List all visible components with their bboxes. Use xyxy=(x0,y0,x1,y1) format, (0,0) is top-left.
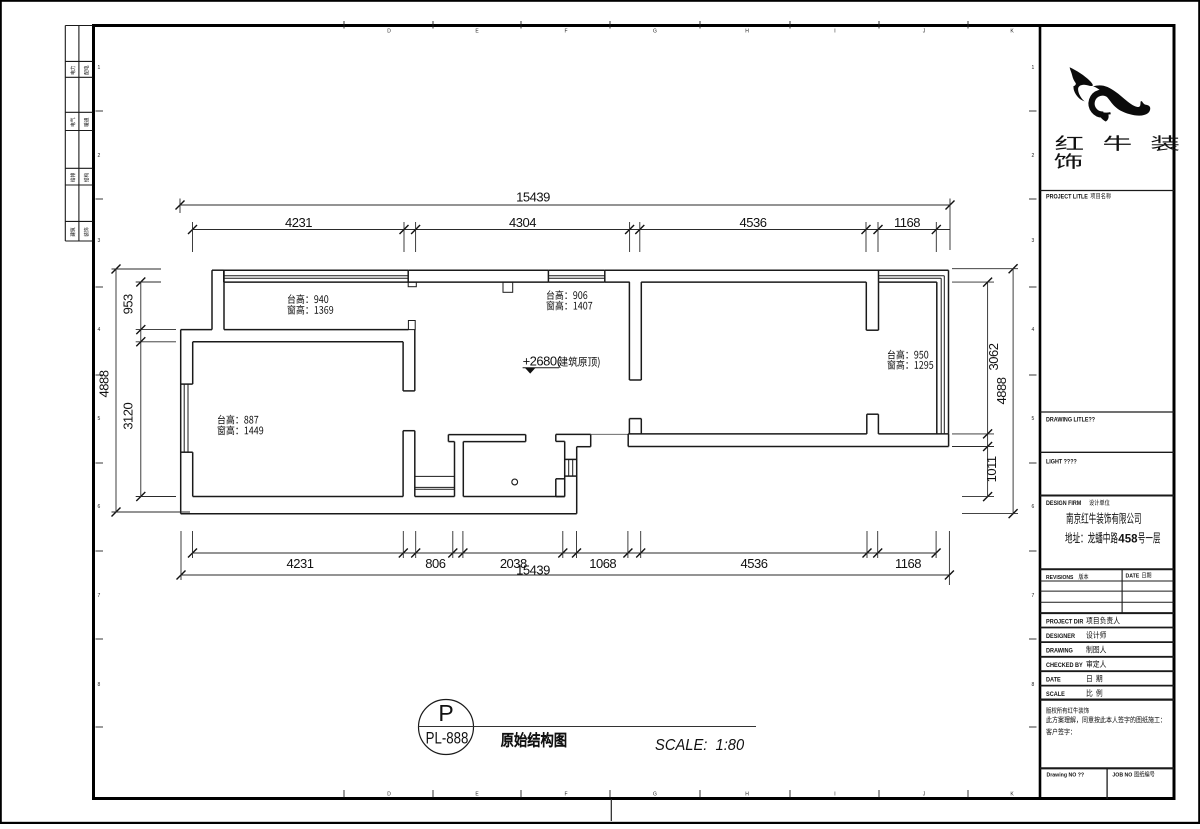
svg-text:4: 4 xyxy=(98,327,101,333)
svg-text:5: 5 xyxy=(98,416,101,422)
svg-text:4304: 4304 xyxy=(509,215,536,230)
svg-text:SCALE: SCALE xyxy=(1046,692,1065,698)
svg-text:I: I xyxy=(834,792,835,798)
svg-text:F: F xyxy=(564,29,567,35)
svg-text:CHECKED BY: CHECKED BY xyxy=(1046,663,1083,669)
svg-text:PROJECT LITLE: PROJECT LITLE xyxy=(1046,194,1088,200)
svg-text:1: 1 xyxy=(1032,65,1035,71)
svg-text:JOB NO: JOB NO xyxy=(1112,772,1133,778)
svg-text:DESIGN FIRM: DESIGN FIRM xyxy=(1046,501,1082,507)
svg-text:15439: 15439 xyxy=(516,190,550,205)
svg-text:SCALE: 1:80: SCALE: 1:80 xyxy=(655,737,745,754)
svg-text:3120: 3120 xyxy=(120,402,135,429)
svg-text:4: 4 xyxy=(1032,327,1035,333)
svg-text:D: D xyxy=(387,29,391,35)
svg-text:4536: 4536 xyxy=(741,556,768,571)
svg-text:PL-888: PL-888 xyxy=(426,729,469,748)
svg-text:7: 7 xyxy=(1032,593,1035,599)
svg-text:DRAWING: DRAWING xyxy=(1046,648,1073,654)
svg-text:DESIGNER: DESIGNER xyxy=(1046,634,1076,640)
svg-text:G: G xyxy=(653,29,657,35)
svg-text:DATE: DATE xyxy=(1126,573,1140,579)
svg-text:H: H xyxy=(745,29,749,35)
svg-text:LIGHT ????: LIGHT ???? xyxy=(1046,459,1077,465)
svg-text:8: 8 xyxy=(98,682,101,688)
svg-text:7: 7 xyxy=(98,593,101,599)
svg-text:2: 2 xyxy=(1032,153,1035,159)
svg-text:D: D xyxy=(387,792,391,798)
svg-text:PROJECT DIR: PROJECT DIR xyxy=(1046,619,1084,625)
svg-text:4888: 4888 xyxy=(994,377,1009,404)
svg-text:4231: 4231 xyxy=(287,556,314,571)
svg-text:458: 458 xyxy=(1118,534,1138,546)
svg-text:3: 3 xyxy=(1032,238,1035,244)
svg-text:8: 8 xyxy=(1032,682,1035,688)
svg-text:1011: 1011 xyxy=(984,456,999,482)
svg-text:G: G xyxy=(653,792,657,798)
svg-text:1168: 1168 xyxy=(895,556,921,571)
svg-text:DATE: DATE xyxy=(1046,677,1061,683)
svg-text:6: 6 xyxy=(98,504,101,510)
svg-text:2: 2 xyxy=(98,153,101,159)
svg-text:+2680(: +2680( xyxy=(523,354,562,369)
svg-text:4536: 4536 xyxy=(740,215,767,230)
svg-text:F: F xyxy=(564,792,567,798)
svg-text:H: H xyxy=(745,792,749,798)
svg-text:P: P xyxy=(438,700,453,726)
svg-text:REVISIONS: REVISIONS xyxy=(1046,575,1074,581)
svg-text:806: 806 xyxy=(425,556,445,571)
svg-text:1068: 1068 xyxy=(589,556,616,571)
svg-text:3: 3 xyxy=(98,238,101,244)
svg-text:5: 5 xyxy=(1032,416,1035,422)
svg-text:6: 6 xyxy=(1032,504,1035,510)
svg-text:4231: 4231 xyxy=(285,215,312,230)
svg-text:I: I xyxy=(834,29,835,35)
svg-text:953: 953 xyxy=(120,294,135,314)
svg-text:1: 1 xyxy=(98,65,101,71)
svg-text:Drawing NO ??: Drawing NO ?? xyxy=(1047,772,1085,778)
svg-text:1168: 1168 xyxy=(894,215,920,230)
svg-text:15439: 15439 xyxy=(516,563,550,578)
svg-text:3062: 3062 xyxy=(986,343,1001,370)
svg-text:4888: 4888 xyxy=(97,370,112,397)
svg-text:DRAWING LITLE??: DRAWING LITLE?? xyxy=(1046,417,1096,423)
